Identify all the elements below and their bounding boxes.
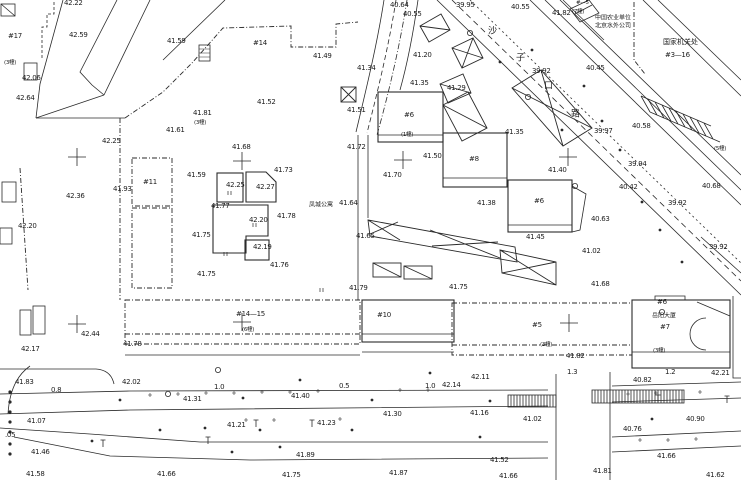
spot-elevation: 41.49 [313, 52, 332, 60]
spot-elevation: 39.94 [628, 160, 647, 168]
spot-elevation: 40.90 [686, 415, 705, 423]
building-id: #6 [657, 298, 667, 306]
dimension: 1.2 [665, 368, 675, 376]
spot-elevation: 41.64 [339, 199, 358, 207]
spot-elevation: 41.73 [274, 166, 293, 174]
spot-elevation: 41.52 [490, 456, 509, 464]
spot-elevation: 41.31 [183, 395, 202, 403]
structure-note: (3幢) [540, 340, 552, 348]
building-id: #7 [660, 323, 670, 331]
spot-elevation: 42.22 [64, 0, 83, 7]
spot-elevation: 41.93 [113, 185, 132, 193]
spot-elevation: 41.68 [591, 280, 610, 288]
spot-elevation: 40.82 [633, 376, 652, 384]
spot-elevation: 39.92 [532, 67, 551, 75]
spot-elevation: 40.55 [511, 3, 530, 11]
spot-elevation: 42.64 [16, 94, 35, 102]
spot-elevation: 40.55 [403, 10, 422, 18]
building-id: #6 [534, 197, 544, 205]
spot-elevation: 41.23 [317, 419, 336, 427]
spot-elevation: 41.70 [383, 171, 402, 179]
structure-note: (6幢) [242, 325, 254, 333]
spot-elevation: 41.51 [347, 106, 366, 114]
spot-elevation: 41.02 [582, 247, 601, 255]
spot-elevation: 41.82 [566, 352, 585, 360]
spot-elevation: 40.45 [586, 64, 605, 72]
building-id: #11 [143, 178, 157, 186]
spot-elevation: 42.25 [102, 137, 121, 145]
spot-elevation: 42.20 [18, 222, 37, 230]
spot-elevation: 42.17 [21, 345, 40, 353]
spot-elevation: 41.79 [349, 284, 368, 292]
spot-elevation: 41.75 [282, 471, 301, 479]
spot-elevation: 41.72 [347, 143, 366, 151]
spot-elevation: 41.65 [356, 232, 375, 240]
spot-elevation: 42.25 [226, 181, 245, 189]
spot-elevation: 40.63 [591, 215, 610, 223]
building-id: #6 [404, 111, 414, 119]
compound-name: 凤城公寓 [309, 200, 333, 209]
tower-name: 岳阳大厦 [652, 311, 676, 320]
spot-elevation: 41.38 [477, 199, 496, 207]
spot-elevation: 42.14 [442, 381, 461, 389]
structure-note: (5幢) [714, 144, 726, 152]
road-name-char: 路 [571, 107, 580, 120]
spot-elevation: 40.42 [619, 183, 638, 191]
spot-elevation: 41.66 [657, 452, 676, 460]
spot-elevation: 41.78 [277, 212, 296, 220]
spot-elevation: 41.59 [167, 37, 186, 45]
building-id: #10 [377, 311, 391, 319]
site-plan-canvas: 42.22#1742.5941.59(3幢)42.0642.6440.6440.… [0, 0, 741, 480]
spot-elevation: 41.75 [449, 283, 468, 291]
building-id: #17 [8, 32, 22, 40]
spot-elevation: 41.40 [548, 166, 567, 174]
building-id: #14 [253, 39, 267, 47]
spot-elevation: 41.40 [291, 392, 310, 400]
spot-elevation: 41.45 [526, 233, 545, 241]
dimension: 1.0 [214, 383, 224, 391]
spot-elevation: 42.02 [122, 378, 141, 386]
spot-elevation: 41.29 [447, 84, 466, 92]
spot-elevation: 42.27 [256, 183, 275, 191]
annotation-layer: 42.22#1742.5941.59(3幢)42.0642.6440.6440.… [0, 0, 741, 480]
spot-elevation: 41.78 [123, 340, 142, 348]
spot-elevation: 39.97 [594, 127, 613, 135]
spot-elevation: 41.87 [389, 469, 408, 477]
spot-elevation: 42.21 [711, 369, 730, 377]
road-name-char: 沙 [488, 24, 497, 37]
building-id: #8 [469, 155, 479, 163]
spot-elevation: 41.68 [232, 143, 251, 151]
spot-elevation: 42.06 [22, 74, 41, 82]
owner-label: 北京水外公司 [595, 21, 631, 30]
spot-elevation: 42.20 [249, 216, 268, 224]
dimension: 0.5 [339, 382, 349, 390]
structure-note: (3幢) [194, 118, 206, 126]
spot-elevation: 41.02 [523, 415, 542, 423]
structure-note: (1幢) [401, 130, 413, 138]
spot-elevation: 41.07 [27, 417, 46, 425]
structure-note: (7幢) [572, 7, 584, 15]
building-id: #3—16 [665, 51, 690, 59]
spot-elevation: 42.19 [253, 243, 272, 251]
spot-elevation: 41.81 [593, 467, 612, 475]
spot-elevation: 41.81 [193, 109, 212, 117]
spot-elevation: 40.64 [390, 1, 409, 9]
spot-elevation: 41.75 [197, 270, 216, 278]
spot-elevation: 41.20 [413, 51, 432, 59]
spot-elevation: 39.92 [709, 243, 728, 251]
spot-elevation: 41.52 [257, 98, 276, 106]
building-id: #—5 [576, 0, 589, 6]
spot-elevation: 42.59 [69, 31, 88, 39]
spot-elevation: 42.36 [66, 192, 85, 200]
spot-elevation: .05 [5, 431, 15, 439]
spot-elevation: 41.66 [157, 470, 176, 478]
spot-elevation: 41.34 [357, 64, 376, 72]
structure-note: (3幢) [4, 58, 16, 66]
spot-elevation: 40.58 [632, 122, 651, 130]
spot-elevation: 41.82 [552, 9, 571, 17]
spot-elevation: 41.83 [15, 378, 34, 386]
spot-elevation: 41.66 [499, 472, 518, 480]
spot-elevation: 41.75 [192, 231, 211, 239]
spot-elevation: 41.61 [166, 126, 185, 134]
spot-elevation: 41.58 [26, 470, 45, 478]
dimension: 0.8 [51, 386, 61, 394]
building-id: #5 [532, 321, 542, 329]
spot-elevation: 41.62 [706, 471, 725, 479]
spot-elevation: 42.11 [471, 373, 490, 381]
building-id: #14—15 [236, 310, 265, 318]
structure-note: (3幢) [653, 346, 665, 354]
dimension: 1.0 [425, 382, 435, 390]
spot-elevation: 41.76 [270, 261, 289, 269]
spot-elevation: 41.35 [410, 79, 429, 87]
road-name-char: 口 [544, 79, 553, 92]
spot-elevation: 39.92 [668, 199, 687, 207]
dimension: 1.3 [567, 368, 577, 376]
spot-elevation: 41.21 [227, 421, 246, 429]
spot-elevation: 40.76 [623, 425, 642, 433]
spot-elevation: 42.44 [81, 330, 100, 338]
spot-elevation: 40.68 [702, 182, 721, 190]
spot-elevation: 41.89 [296, 451, 315, 459]
spot-elevation: 41.59 [187, 171, 206, 179]
spot-elevation: 41.50 [423, 152, 442, 160]
road-name-char: 子 [516, 51, 525, 64]
spot-elevation: 41.35 [505, 128, 524, 136]
spot-elevation: 41.77 [211, 202, 230, 210]
spot-elevation: 41.16 [470, 409, 489, 417]
owner-label: 国家机关处 [663, 37, 698, 47]
spot-elevation: 41.46 [31, 448, 50, 456]
spot-elevation: 41.30 [383, 410, 402, 418]
spot-elevation: 39.95 [456, 1, 475, 9]
